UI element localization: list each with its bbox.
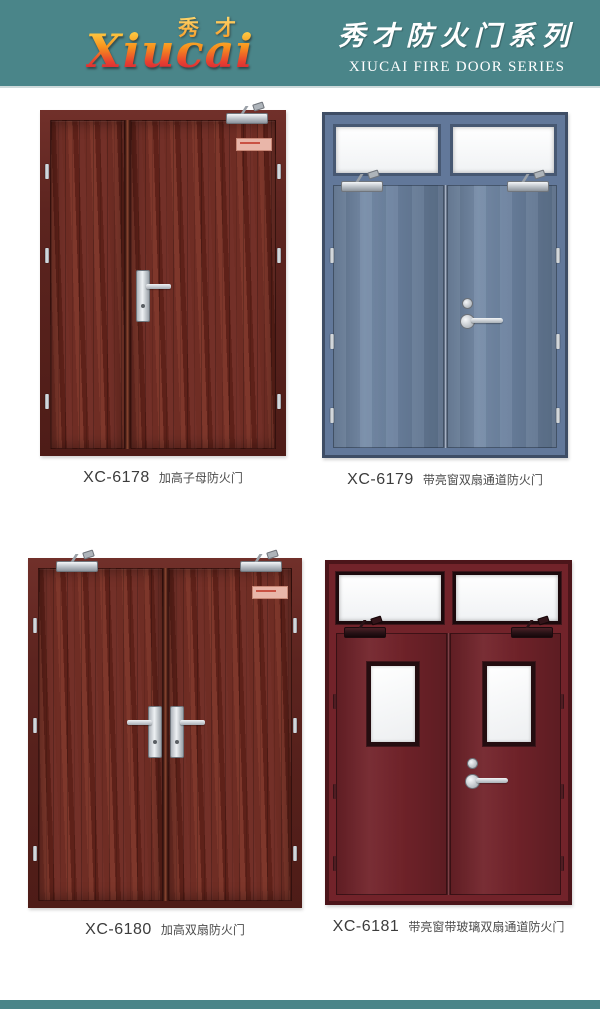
logo-latin-text: Xiucai xyxy=(86,24,254,78)
hinge-icon xyxy=(556,334,560,349)
hinge-icon xyxy=(45,248,49,263)
lock-plate xyxy=(136,270,150,322)
door-leaves xyxy=(336,633,561,895)
hinge-icon xyxy=(277,248,281,263)
keyhole-icon xyxy=(153,740,157,744)
hinge-icon xyxy=(333,784,337,799)
door-handle-icon xyxy=(180,720,205,725)
hinge-icon xyxy=(33,846,37,861)
door-leaf-left xyxy=(336,633,447,895)
hinge-icon xyxy=(560,784,564,799)
hinge-icon xyxy=(293,718,297,733)
hinge-icon xyxy=(556,408,560,423)
door-image-xc6181 xyxy=(325,560,572,905)
hinge-icon xyxy=(560,856,564,871)
door-closer-icon xyxy=(344,627,386,638)
product-caption: XC-6178加高子母防火门 xyxy=(40,469,286,487)
hinge-icon xyxy=(293,618,297,633)
door-leaf-left xyxy=(333,185,444,448)
hinge-icon xyxy=(33,618,37,633)
product-model: XC-6181 xyxy=(333,918,400,935)
product-model: XC-6178 xyxy=(83,469,150,486)
product-figure-xc6179: XC-6179带亮窗双扇通道防火门 xyxy=(322,112,568,489)
door-closer-icon xyxy=(226,113,268,124)
door-closer-icon xyxy=(56,561,98,572)
lock-plate-left xyxy=(148,706,162,758)
product-name: 带亮窗双扇通道防火门 xyxy=(423,473,543,487)
header-banner: 秀才 Xiucai 秀才防火门系列 XIUCAI FIRE DOOR SERIE… xyxy=(0,0,600,88)
series-title-block: 秀才防火门系列 XIUCAI FIRE DOOR SERIES xyxy=(332,14,582,76)
door-leaves xyxy=(333,185,557,448)
hinge-icon xyxy=(333,856,337,871)
door-closer-icon xyxy=(511,627,553,638)
product-model: XC-6180 xyxy=(85,921,152,938)
product-caption: XC-6180加高双扇防火门 xyxy=(28,921,302,939)
hinge-icon xyxy=(556,248,560,263)
hinge-icon xyxy=(45,164,49,179)
product-name: 带亮窗带玻璃双扇通道防火门 xyxy=(408,920,564,934)
door-leaf-left xyxy=(38,568,163,901)
series-title-chinese: 秀才防火门系列 xyxy=(332,14,582,53)
series-title-english: XIUCAI FIRE DOOR SERIES xyxy=(332,59,582,76)
vision-glass-window xyxy=(367,662,419,746)
keyhole-icon xyxy=(141,304,145,308)
door-closer-icon xyxy=(240,561,282,572)
transom-row xyxy=(336,572,561,624)
door-closer-icon xyxy=(507,181,549,192)
product-figure-xc6181: XC-6181带亮窗带玻璃双扇通道防火门 xyxy=(325,560,572,936)
door-handle-icon xyxy=(146,284,171,289)
transom-window xyxy=(336,572,444,624)
product-figure-xc6178: XC-6178加高子母防火门 xyxy=(40,110,286,487)
door-image-xc6179 xyxy=(322,112,568,458)
lever-handle-icon xyxy=(465,774,509,788)
transom-window xyxy=(333,124,441,176)
door-image-xc6180 xyxy=(28,558,302,908)
hinge-icon xyxy=(330,248,334,263)
hinge-icon xyxy=(333,694,337,709)
transom-window xyxy=(450,124,558,176)
hinge-icon xyxy=(293,846,297,861)
hinge-icon xyxy=(33,718,37,733)
fire-rating-label xyxy=(236,138,272,151)
hinge-icon xyxy=(45,394,49,409)
lever-handle-icon xyxy=(460,314,504,328)
brand-logo: 秀才 Xiucai xyxy=(86,6,296,82)
fire-rating-label xyxy=(252,586,288,599)
door-leaf-narrow xyxy=(50,120,125,449)
lock-cylinder-icon xyxy=(467,758,478,769)
footer-band xyxy=(0,1000,600,1009)
keyhole-icon xyxy=(175,740,179,744)
door-leaf-right xyxy=(168,568,293,901)
lock-plate-right xyxy=(170,706,184,758)
door-leaf-right xyxy=(450,633,561,895)
door-handle-icon xyxy=(127,720,152,725)
product-name: 加高双扇防火门 xyxy=(161,923,245,937)
product-caption: XC-6179带亮窗双扇通道防火门 xyxy=(322,471,568,489)
product-caption: XC-6181带亮窗带玻璃双扇通道防火门 xyxy=(325,918,572,936)
product-model: XC-6179 xyxy=(347,471,414,488)
hinge-icon xyxy=(330,408,334,423)
door-leaves xyxy=(38,568,292,901)
door-image-xc6178 xyxy=(40,110,286,456)
hinge-icon xyxy=(277,394,281,409)
transom-row xyxy=(333,124,557,176)
door-closer-icon xyxy=(341,181,383,192)
product-name: 加高子母防火门 xyxy=(159,471,243,485)
door-leaf-right xyxy=(447,185,558,448)
vision-glass-window xyxy=(483,662,535,746)
hinge-icon xyxy=(560,694,564,709)
catalog-page: 秀才 Xiucai 秀才防火门系列 XIUCAI FIRE DOOR SERIE… xyxy=(0,0,600,1009)
hinge-icon xyxy=(330,334,334,349)
product-figure-xc6180: XC-6180加高双扇防火门 xyxy=(28,558,302,939)
hinge-icon xyxy=(277,164,281,179)
lock-cylinder-icon xyxy=(462,298,473,309)
